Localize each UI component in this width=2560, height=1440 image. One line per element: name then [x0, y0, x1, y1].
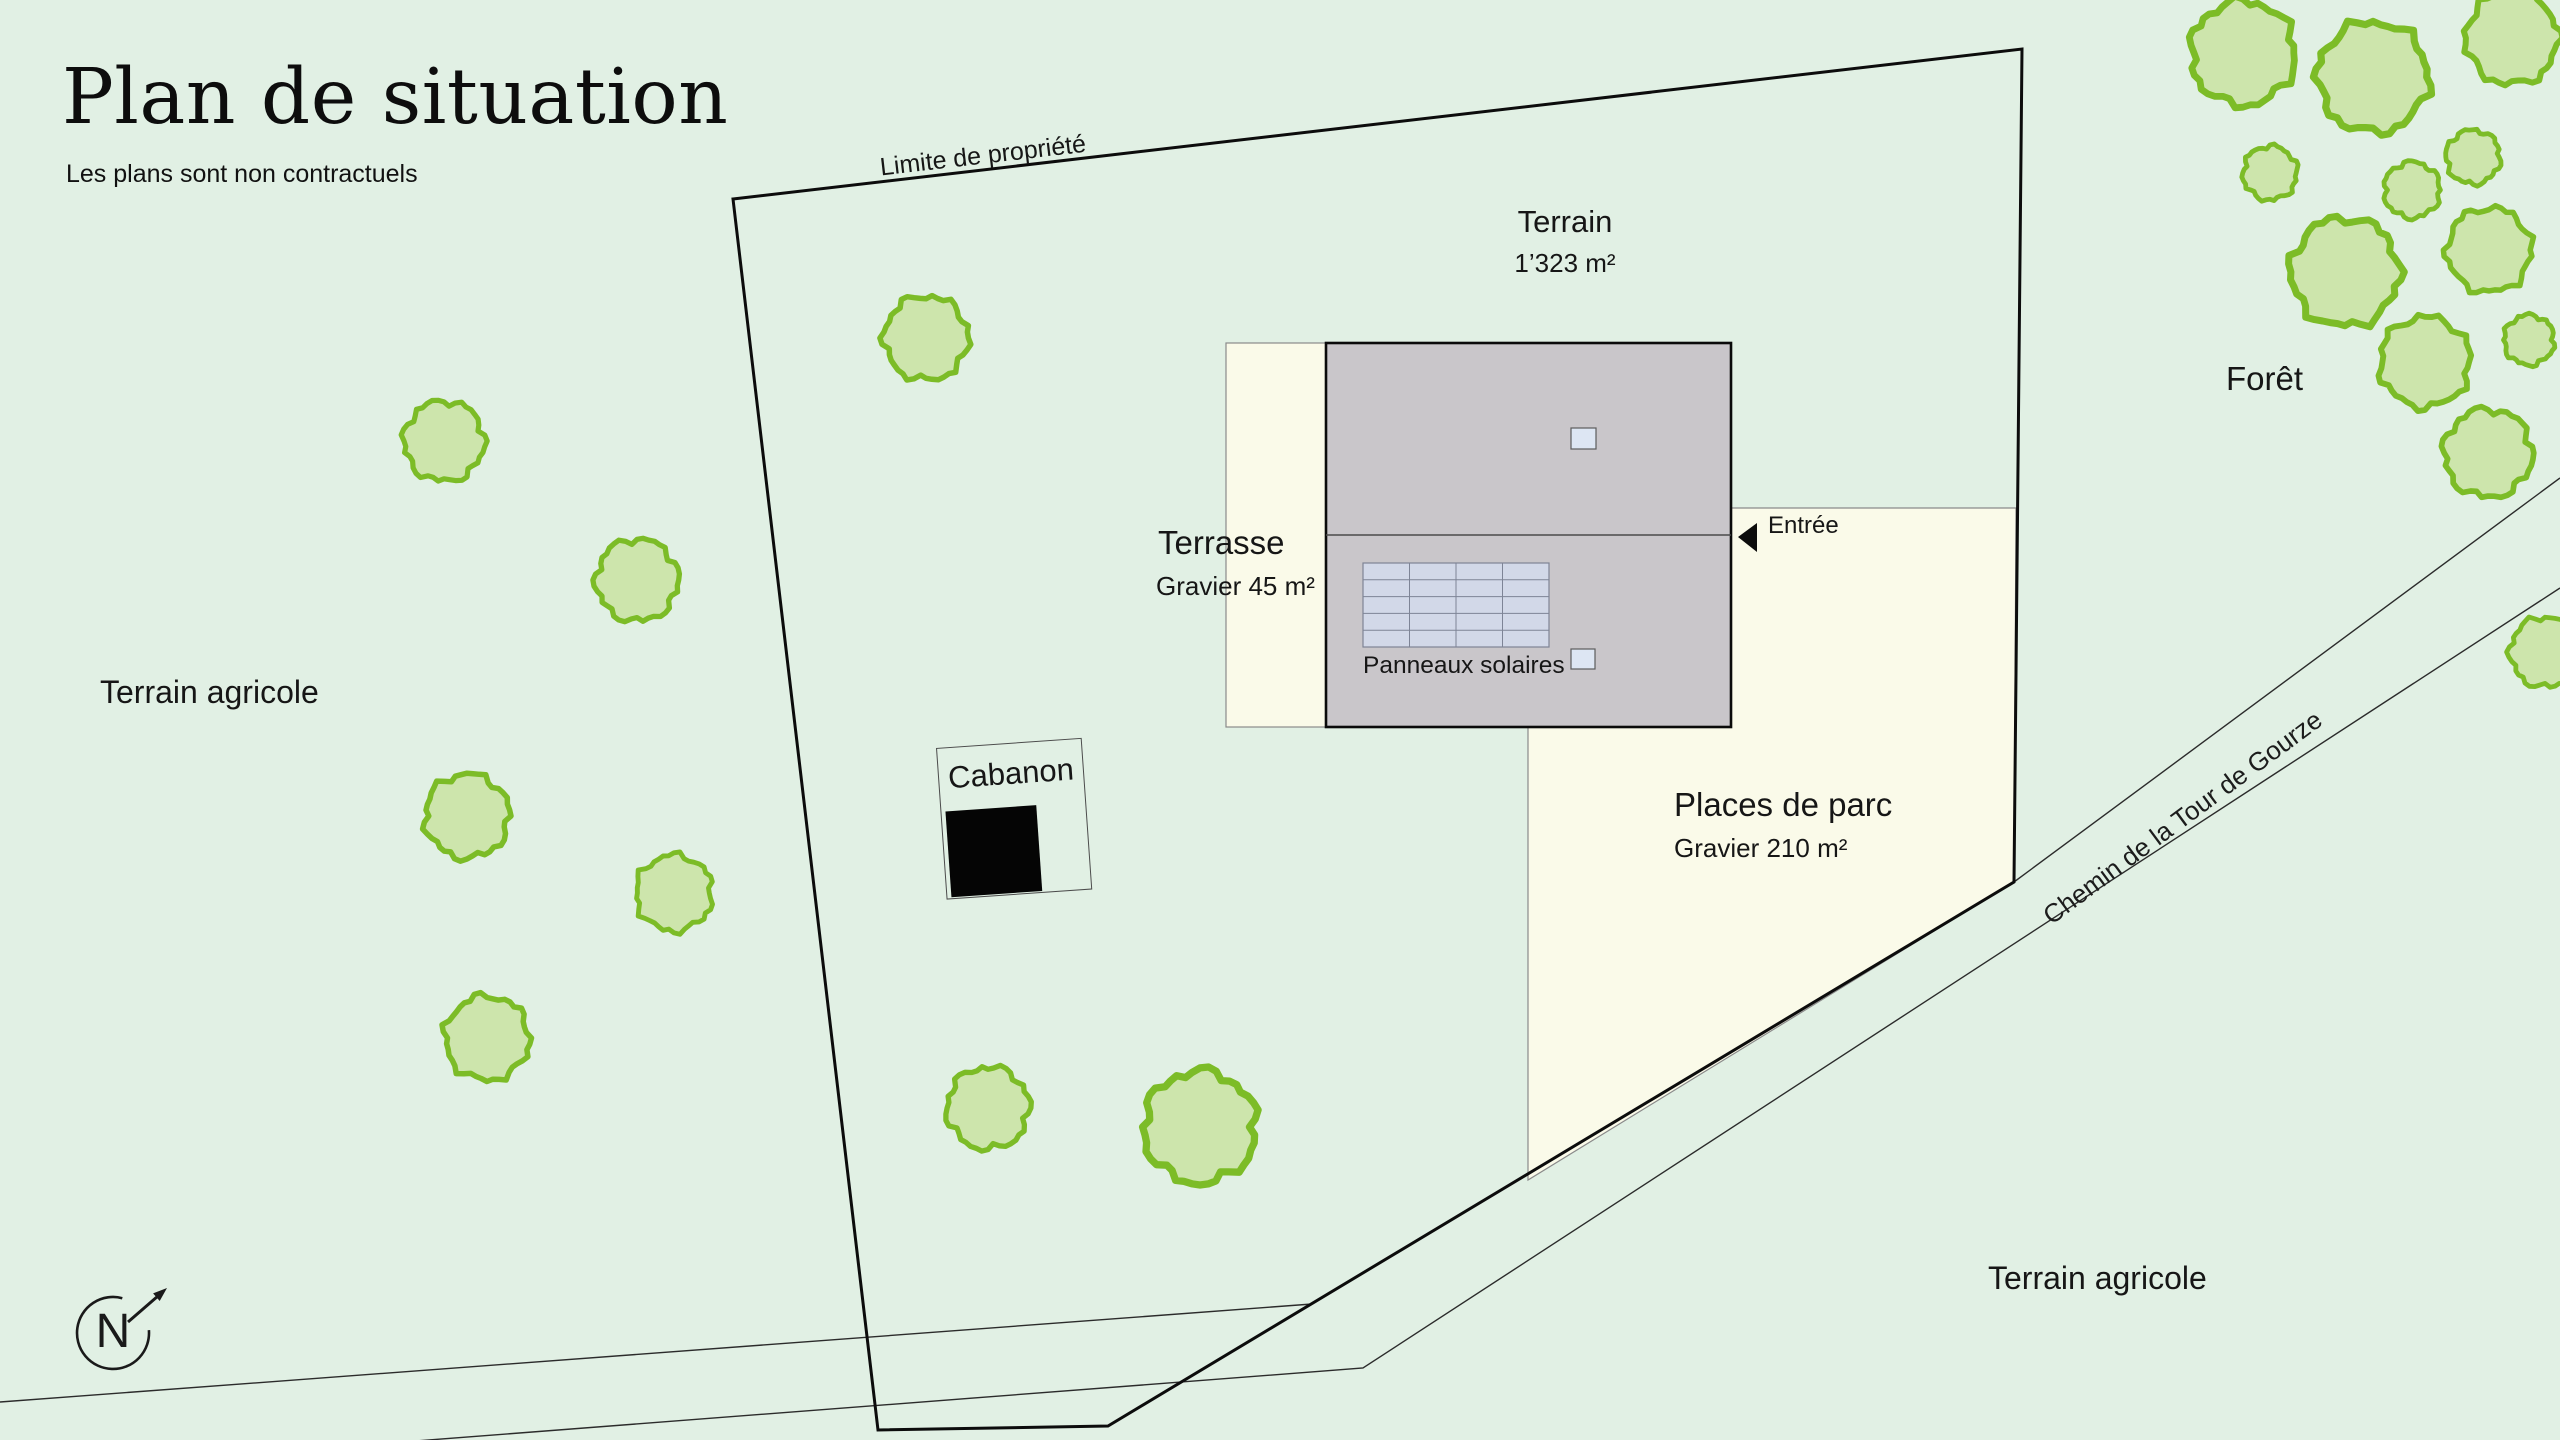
compass-arrow-shaft [128, 1296, 158, 1322]
site-plan-canvas: Plan de situation Les plans sont non con… [0, 0, 2560, 1440]
tree-icon [2242, 144, 2298, 201]
terrace-name: Terrasse [1158, 524, 1285, 562]
page-subtitle: Les plans sont non contractuels [66, 160, 418, 189]
cabanon-label: Cabanon [938, 751, 1084, 797]
compass-north-label: N [96, 1304, 131, 1359]
road-edge-upper-east [2014, 478, 2560, 882]
tree-icon [593, 538, 680, 621]
entrance-label: Entrée [1768, 512, 1839, 540]
terrain-label-block: Terrain 1’323 m² [1514, 204, 1615, 279]
parking-name: Places de parc [1674, 786, 1892, 824]
tree-icon [2379, 315, 2472, 411]
tree-icon [946, 1065, 1031, 1151]
tree-icon [401, 400, 487, 481]
parking-size: Gravier 210 m² [1674, 834, 1847, 864]
solar-panels-label: Panneaux solaires [1363, 652, 1565, 680]
tree-icon [2443, 206, 2533, 293]
agricultural-land-left-label: Terrain agricole [100, 674, 319, 711]
tree-icon [2289, 216, 2405, 326]
tree-icon [2507, 617, 2560, 687]
agricultural-land-bottom-label: Terrain agricole [1988, 1260, 2207, 1297]
page-title: Plan de situation [62, 54, 728, 143]
skylight-north [1571, 428, 1596, 449]
tree-icon [880, 296, 971, 380]
tree-icon [2384, 161, 2441, 220]
tree-icon [2313, 21, 2431, 135]
terrace-size: Gravier 45 m² [1156, 572, 1315, 602]
terrain-name: Terrain [1514, 204, 1615, 240]
site-plan-drawing [0, 0, 2560, 1440]
skylight-south [1571, 649, 1595, 669]
tree-icon [2504, 313, 2555, 367]
tree-icon [2464, 0, 2560, 85]
tree-icon [423, 773, 511, 861]
tree-icon [1143, 1067, 1259, 1185]
tree-icon [637, 852, 713, 934]
tree-icon [2446, 129, 2501, 186]
tree-icon [2189, 0, 2294, 108]
tree-icon [2441, 407, 2533, 498]
tree-icon [442, 993, 532, 1082]
terrain-size: 1’323 m² [1514, 249, 1615, 279]
forest-label: Forêt [2226, 360, 2303, 398]
solar-panels [1363, 563, 1549, 647]
cabanon-footprint [945, 805, 1042, 897]
cabanon-callout-box: Cabanon [936, 738, 1092, 900]
